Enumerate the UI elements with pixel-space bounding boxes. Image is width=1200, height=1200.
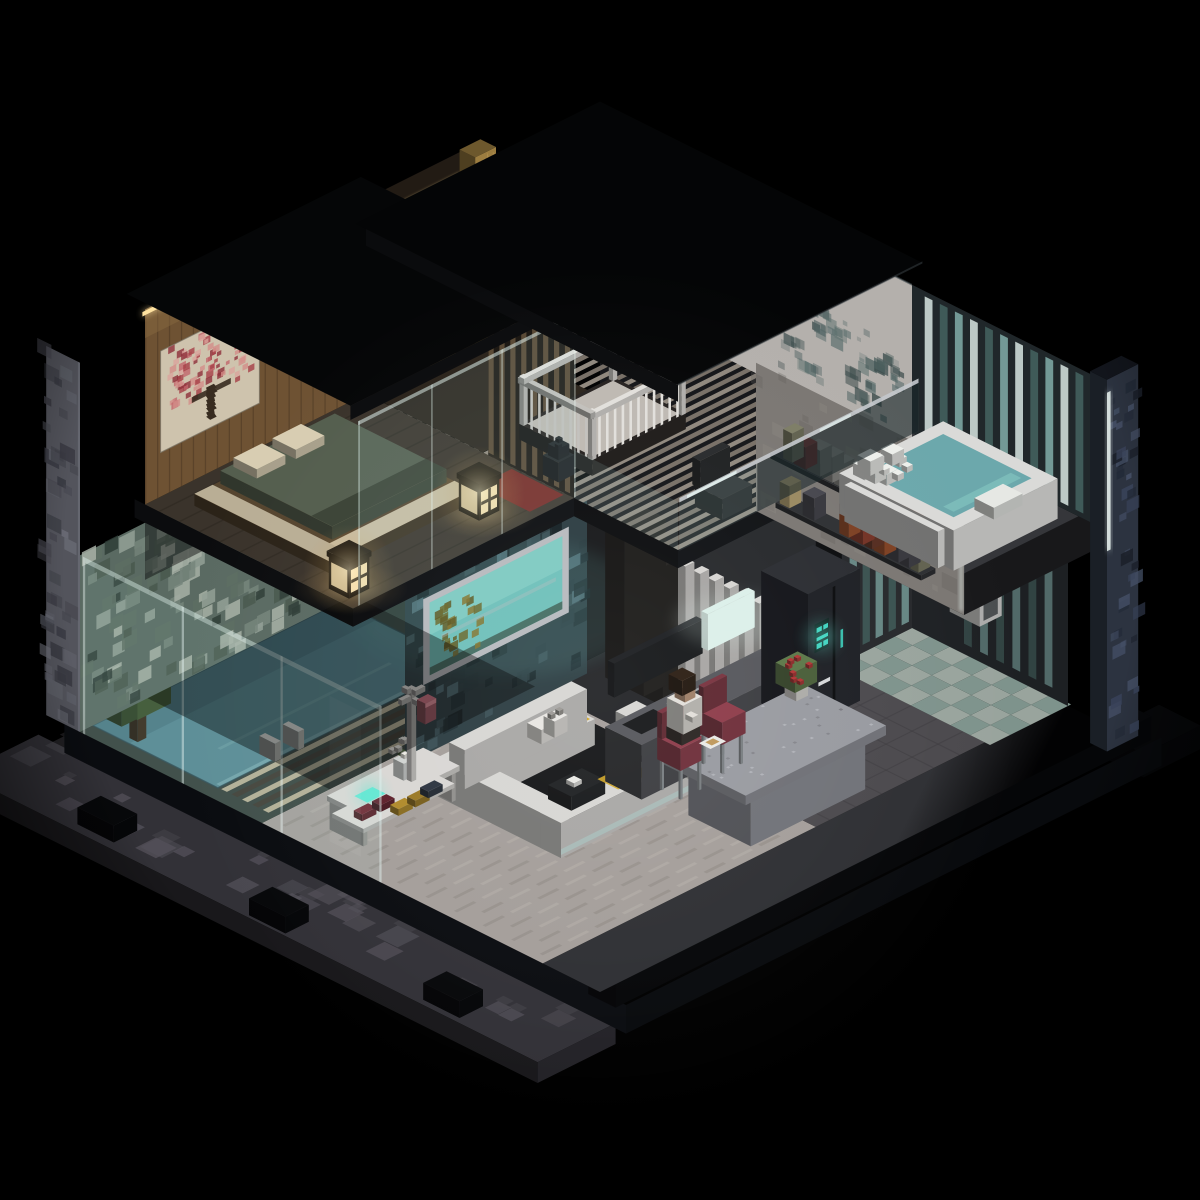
scene-root (0, 0, 1200, 1200)
render-viewport: Isometric voxel-art night cutaway of a t… (0, 0, 1200, 1200)
voxel-house-render: Isometric voxel-art night cutaway of a t… (0, 0, 1200, 1200)
vignette (0, 0, 1200, 1200)
ambience (0, 0, 1200, 1200)
